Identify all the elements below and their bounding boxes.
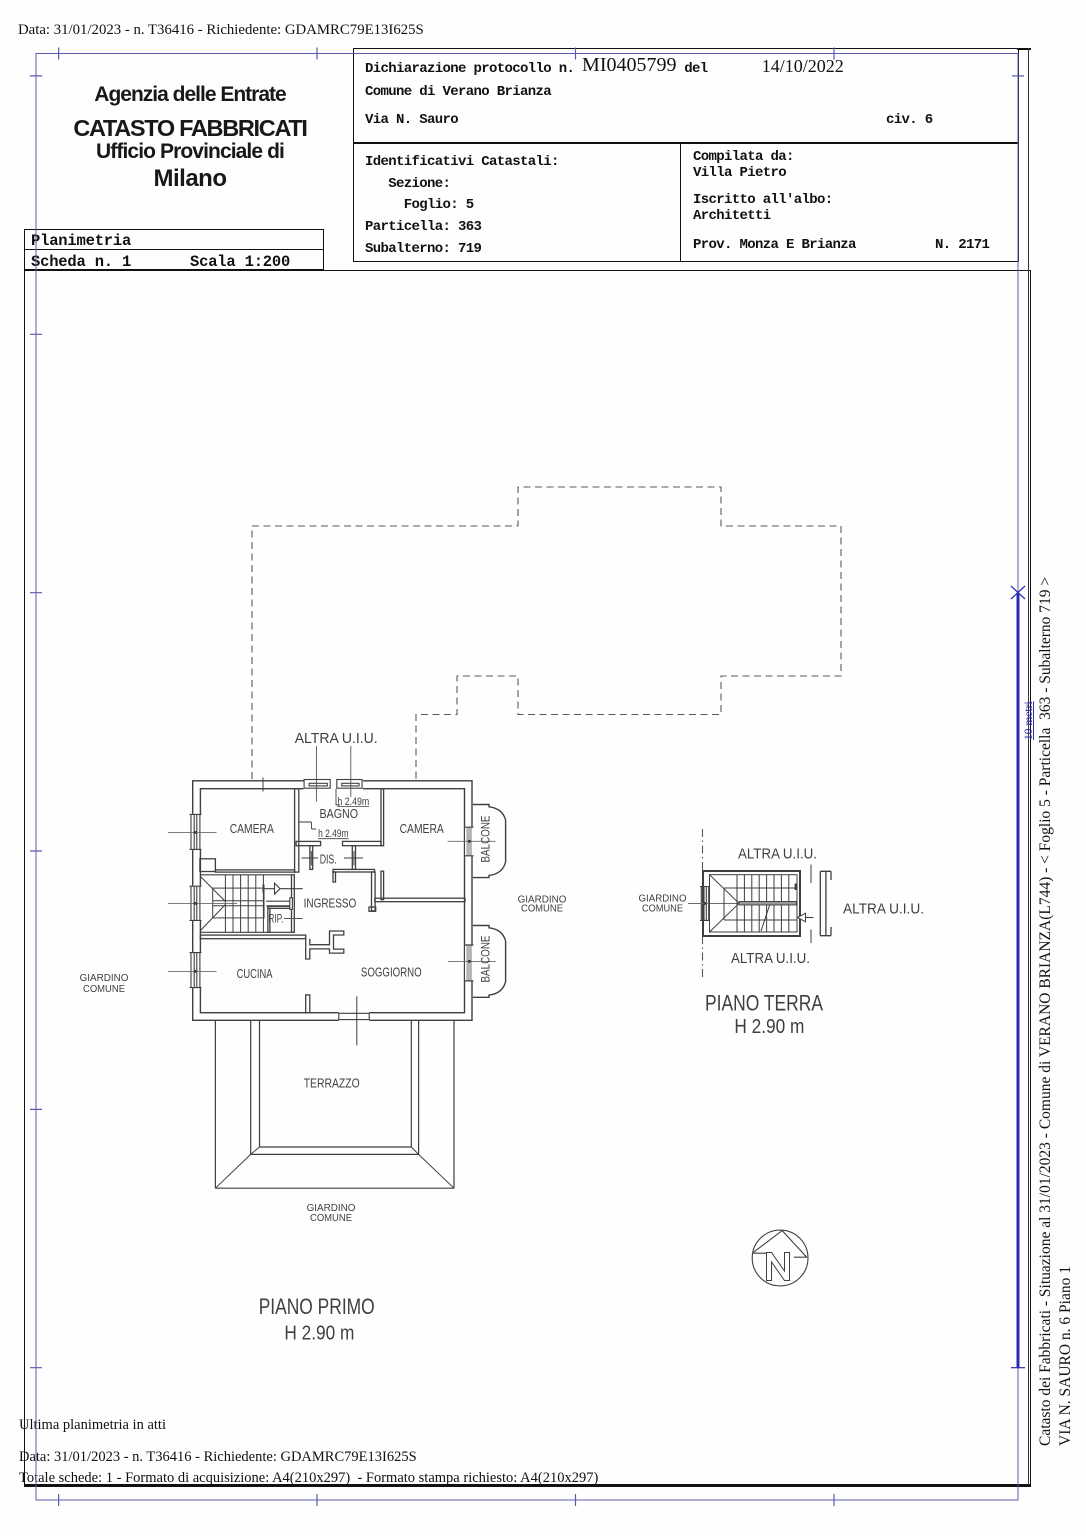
svg-text:CUCINA: CUCINA	[237, 966, 273, 981]
svg-text:PIANO PRIMO: PIANO PRIMO	[259, 1294, 375, 1319]
svg-text:SOGGIORNO: SOGGIORNO	[361, 965, 422, 980]
svg-text:CAMERA: CAMERA	[400, 821, 444, 836]
svg-text:COMUNE: COMUNE	[310, 1212, 352, 1224]
svg-text:INGRESSO: INGRESSO	[304, 896, 357, 911]
svg-text:COMUNE: COMUNE	[83, 983, 125, 995]
svg-text:CAMERA: CAMERA	[230, 821, 274, 836]
svg-text:ALTRA U.I.U.: ALTRA U.I.U.	[843, 902, 924, 918]
svg-text:TERRAZZO: TERRAZZO	[304, 1076, 360, 1091]
svg-text:COMUNE: COMUNE	[642, 904, 683, 915]
svg-text:BALCONE: BALCONE	[481, 815, 493, 862]
svg-text:ALTRA U.I.U.: ALTRA U.I.U.	[731, 951, 810, 967]
svg-text:h 2.49m: h 2.49m	[337, 796, 369, 808]
svg-text:DIS.: DIS.	[320, 853, 337, 867]
svg-text:BAGNO: BAGNO	[320, 806, 359, 821]
svg-text:RIP.: RIP.	[268, 912, 283, 926]
svg-text:PIANO TERRA: PIANO TERRA	[705, 991, 823, 1016]
svg-text:ALTRA U.I.U.: ALTRA U.I.U.	[738, 847, 817, 863]
svg-text:H 2.90 m: H 2.90 m	[734, 1016, 804, 1038]
svg-text:H 2.90 m: H 2.90 m	[284, 1323, 354, 1345]
svg-text:h 2.49m: h 2.49m	[318, 828, 348, 840]
svg-text:BALCONE: BALCONE	[481, 935, 493, 982]
svg-text:ALTRA U.I.U.: ALTRA U.I.U.	[295, 731, 378, 747]
svg-text:COMUNE: COMUNE	[521, 903, 563, 915]
